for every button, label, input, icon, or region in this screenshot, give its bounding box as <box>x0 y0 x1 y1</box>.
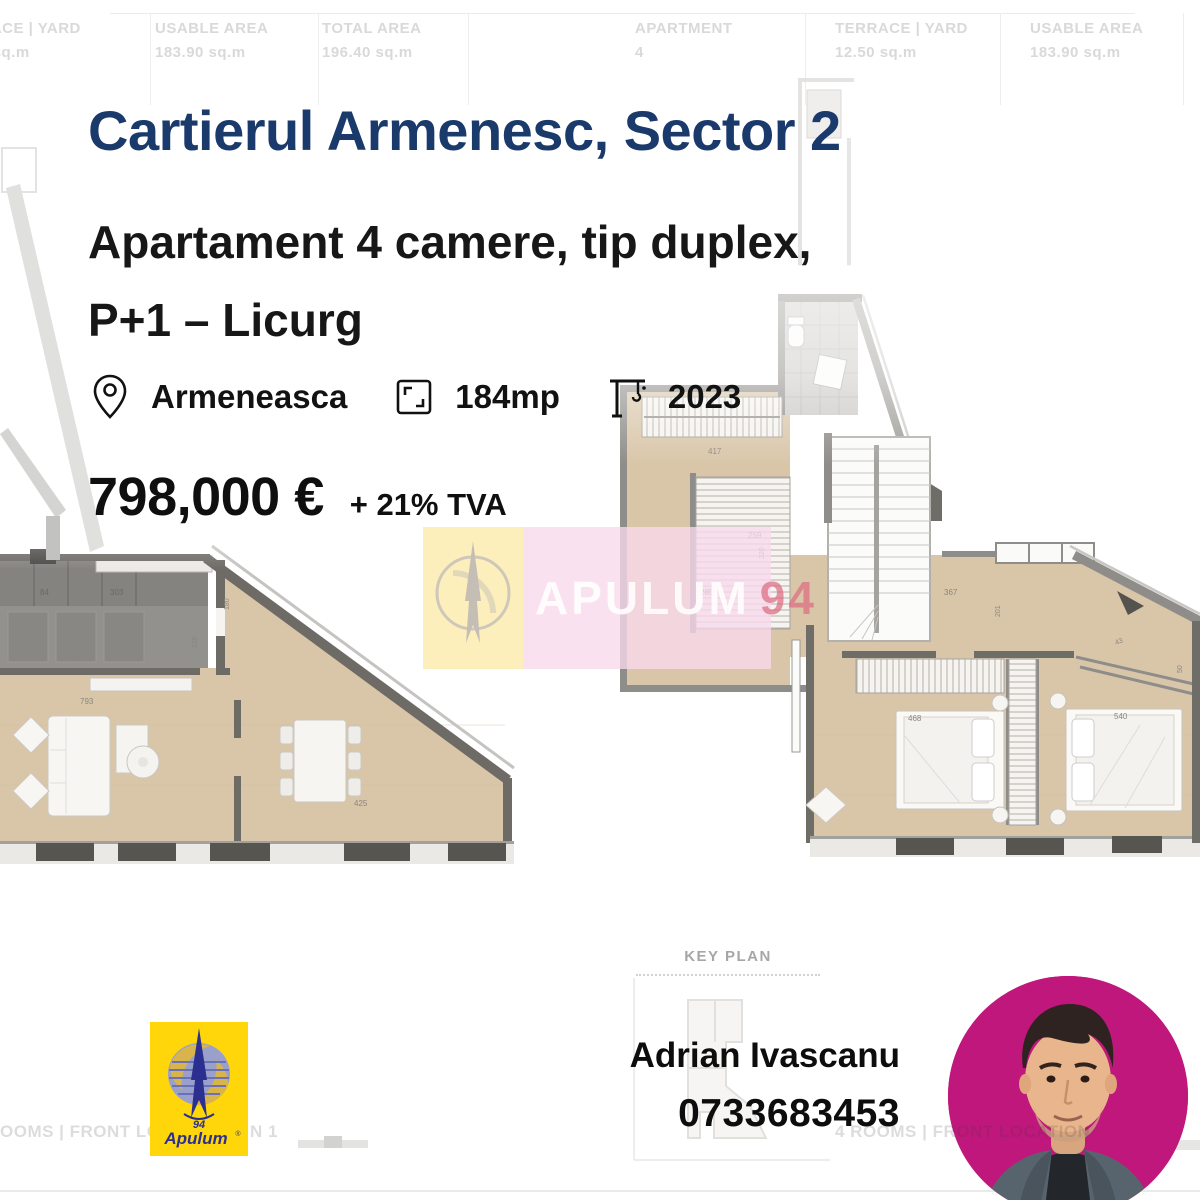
dim-label: 180 <box>224 598 231 610</box>
subtitle-line-1: Apartament 4 camere, tip duplex, <box>88 203 811 281</box>
logo-name: Apulum <box>163 1129 227 1148</box>
dim-label: 367 <box>944 588 958 597</box>
dim-label: 425 <box>354 799 368 808</box>
apulum-logo-ghost-icon <box>423 527 523 669</box>
vat-note: + 21% TVA <box>350 487 507 523</box>
dim-label: 150 <box>192 636 199 648</box>
spec-col-terrace-right: TERRACE | YARD 12.50 sq.m <box>835 20 968 61</box>
apulum-watermark: APULUM94 <box>423 527 771 669</box>
year-value: 2023 <box>668 378 741 416</box>
agent-contact: Adrian Ivascanu 0733683453 <box>500 1036 900 1136</box>
area-icon <box>395 378 433 416</box>
property-facts-row: Armeneasca 184mp 2023 <box>93 372 741 422</box>
spec-col-usable-left: USABLE AREA 183.90 sq.m <box>155 20 268 61</box>
key-plan-label: KEY PLAN <box>628 948 828 965</box>
dim-label: 793 <box>80 697 94 706</box>
spec-col-apartment: APARTMENT 4 <box>635 20 733 61</box>
listing-flyer: TERRACE | YARD 12.50 sq.m USABLE AREA 18… <box>0 0 1200 1200</box>
logo-registered-mark: ® <box>235 1130 241 1138</box>
watermark-word: APULUM <box>535 572 750 624</box>
dim-label: 201 <box>995 605 1002 617</box>
faint-caption-left-tail: N 1 <box>250 1122 278 1142</box>
spec-separator <box>1183 13 1184 105</box>
dim-label: 303 <box>110 588 124 597</box>
watermark-number: 94 <box>760 572 817 624</box>
price-value: 798,000 € <box>88 466 324 528</box>
spec-separator <box>1000 13 1001 105</box>
apulum-logo: 94 Apulum ® <box>150 1022 248 1161</box>
crane-icon <box>608 374 648 420</box>
apulum-logo-icon: 94 Apulum ® <box>150 1022 248 1156</box>
key-plan-rule <box>636 974 820 976</box>
page-title: Cartierul Armenesc, Sector 2 <box>88 98 841 163</box>
location-value: Armeneasca <box>151 378 347 416</box>
area-value: 184mp <box>455 378 560 416</box>
price-row: 798,000 € + 21% TVA <box>88 466 507 528</box>
agent-name: Adrian Ivascanu <box>500 1036 900 1076</box>
subtitle-line-2: P+1 – Licurg <box>88 281 811 359</box>
dim-label: 50 <box>1177 665 1184 673</box>
watermark-logo-panel <box>423 527 523 669</box>
spec-col-usable-right: USABLE AREA 183.90 sq.m <box>1030 20 1143 61</box>
spec-col-total-left: TOTAL AREA 196.40 sq.m <box>322 20 421 61</box>
dim-label: 84 <box>40 588 49 597</box>
dim-label: 540 <box>1114 712 1128 721</box>
watermark-text: APULUM94 <box>535 571 817 625</box>
faint-caption-right: 4 ROOMS | FRONT LOCATION 1 <box>835 1122 1095 1142</box>
agent-portrait <box>948 976 1188 1200</box>
listing-subtitle: Apartament 4 camere, tip duplex, P+1 – L… <box>88 203 811 359</box>
spec-separator <box>468 13 469 105</box>
location-pin-icon <box>93 374 127 420</box>
spec-separator <box>150 13 151 105</box>
dim-label: 740 <box>66 653 80 662</box>
spec-col-terrace-left: TERRACE | YARD 12.50 sq.m <box>0 20 81 61</box>
table-top-rule <box>110 13 1135 14</box>
dim-label: 468 <box>908 714 922 723</box>
agent-photo <box>948 976 1188 1200</box>
spec-separator <box>318 13 319 105</box>
